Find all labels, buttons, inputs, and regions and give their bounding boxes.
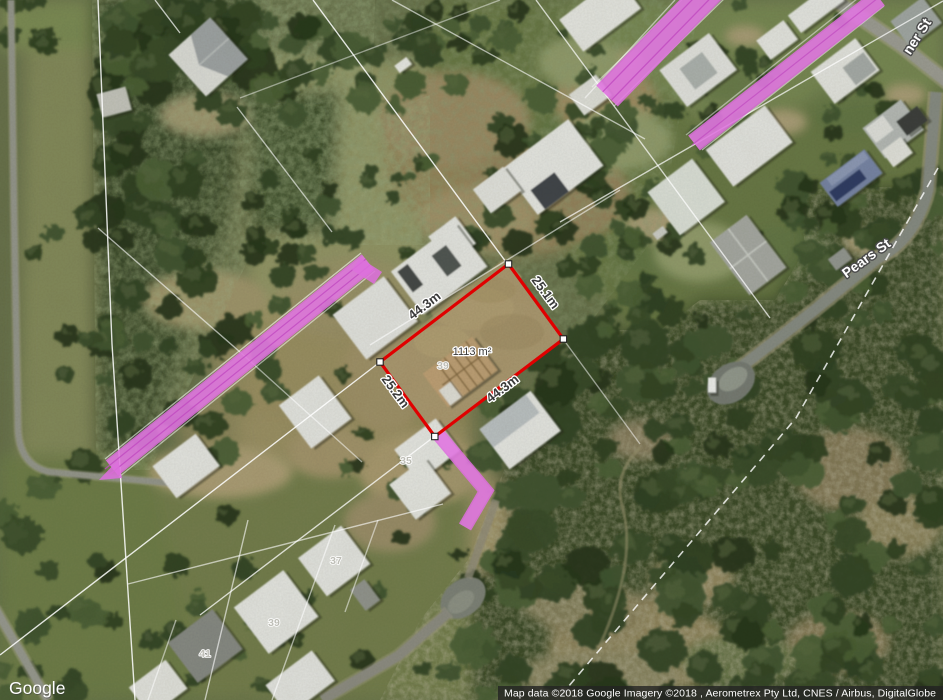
svg-text:41: 41 (199, 648, 211, 660)
svg-text:Map data ©2018 Google Imagery: Map data ©2018 Google Imagery ©2018 , Ae… (504, 688, 936, 700)
svg-text:39: 39 (437, 360, 449, 372)
svg-text:39: 39 (268, 617, 280, 629)
svg-text:1113 m²: 1113 m² (453, 346, 492, 358)
svg-text:Google: Google (9, 678, 65, 698)
svg-text:37: 37 (330, 555, 342, 567)
svg-text:35: 35 (400, 455, 412, 467)
